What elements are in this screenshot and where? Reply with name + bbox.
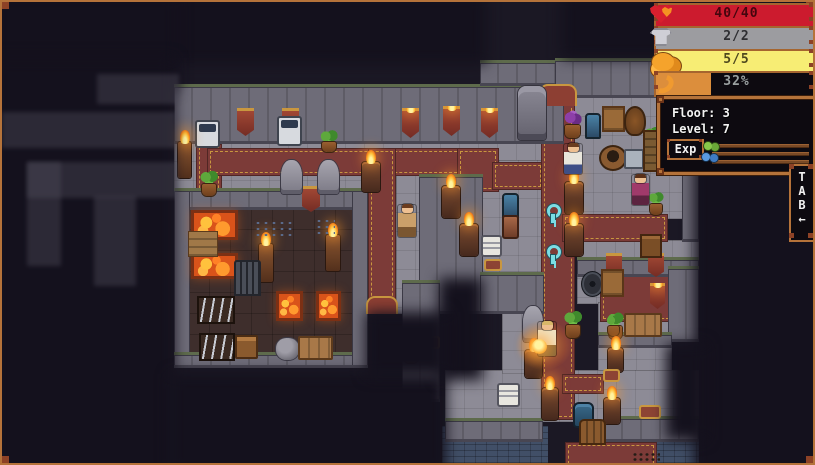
- dim: [2, 112, 176, 148]
- hunger-value: 32%: [656, 73, 815, 95]
- well[interactable]: [599, 145, 627, 171]
- vending[interactable]: [277, 116, 302, 146]
- chute: [624, 149, 644, 169]
- panel-corner: [657, 168, 664, 175]
- sign[interactable]: [497, 383, 520, 407]
- health-value: 40/40: [656, 5, 815, 27]
- brazier: [604, 398, 620, 424]
- brazier: [362, 162, 380, 192]
- plant: [198, 170, 220, 196]
- bench: [624, 313, 662, 337]
- bench-red: [603, 369, 620, 382]
- bench-red: [484, 259, 502, 271]
- brazier: [460, 224, 478, 256]
- gear: [582, 272, 603, 296]
- crate[interactable]: [602, 106, 625, 132]
- frame-corner: [2, 2, 9, 9]
- dim: [94, 196, 136, 286]
- exp-button[interactable]: Exp: [667, 139, 704, 160]
- game-screen: 40/40 2/2 5/5 32% Floor: 3 Level: 7 Exp …: [0, 0, 815, 465]
- cabinet[interactable]: [640, 234, 662, 258]
- key[interactable]: [545, 204, 560, 224]
- debris: [254, 220, 292, 238]
- rock: [276, 338, 299, 360]
- bench: [298, 336, 333, 360]
- gold-icon: [652, 53, 674, 71]
- orb: [532, 339, 547, 354]
- wall: [174, 188, 190, 368]
- door[interactable]: [579, 419, 606, 445]
- crate[interactable]: [601, 269, 624, 297]
- frame-corner: [2, 456, 9, 463]
- totem-blue: [585, 113, 601, 139]
- charge-value: 5/5: [656, 51, 815, 73]
- frame-corner: [806, 456, 813, 463]
- rack[interactable]: [197, 296, 235, 324]
- lava: [276, 291, 303, 321]
- debris: [315, 218, 335, 234]
- wall: [174, 84, 564, 144]
- chest[interactable]: [235, 335, 258, 359]
- hunger-bar: 32%: [654, 71, 815, 97]
- sign[interactable]: [481, 235, 502, 257]
- debris-dark: [632, 452, 660, 462]
- blue-orbs-icon: [702, 153, 710, 161]
- torch-stand: [326, 235, 340, 271]
- statue: [318, 160, 339, 194]
- plant: [605, 314, 622, 336]
- statue: [281, 160, 302, 194]
- dim: [27, 162, 61, 266]
- wall: [445, 418, 543, 442]
- fogx: [666, 344, 706, 440]
- plant: [647, 191, 665, 215]
- fogx: [170, 374, 446, 465]
- bench-red: [639, 405, 661, 419]
- carpet: [492, 162, 544, 190]
- brazier: [565, 182, 583, 214]
- level-label: Level: 7: [672, 122, 730, 136]
- npc[interactable]: [632, 175, 649, 205]
- npc[interactable]: [398, 205, 416, 237]
- floor-label: Floor: 3: [672, 106, 730, 120]
- statue-face: [518, 86, 546, 140]
- plant: [318, 130, 340, 152]
- vending[interactable]: [195, 120, 220, 148]
- wall: [480, 60, 564, 86]
- brazier: [542, 388, 558, 420]
- tab-letter: A: [791, 184, 813, 198]
- lava: [316, 291, 341, 321]
- torch-stand: [178, 142, 191, 178]
- carpet: [562, 374, 604, 394]
- tab-button[interactable]: T A B ←: [789, 164, 815, 242]
- tab-arrow-icon: ←: [791, 212, 813, 226]
- brazier: [442, 186, 460, 218]
- torch-stand: [259, 244, 273, 282]
- plant-purple: [561, 110, 584, 138]
- exp-stripe: [712, 144, 809, 148]
- npc[interactable]: [564, 144, 582, 174]
- panel-corner: [657, 96, 664, 103]
- tab-letter: B: [791, 198, 813, 212]
- fogx: [366, 312, 448, 376]
- brazier: [565, 224, 583, 256]
- green-orbs-icon: [704, 142, 712, 150]
- rack[interactable]: [199, 333, 235, 361]
- anvil[interactable]: [234, 260, 261, 296]
- dim: [97, 74, 179, 104]
- ramp: [188, 231, 218, 257]
- exp-stripe: [712, 152, 809, 156]
- tab-letter: T: [791, 170, 813, 184]
- pillar: [502, 215, 519, 239]
- key[interactable]: [545, 245, 560, 265]
- armor-value: 2/2: [656, 28, 815, 50]
